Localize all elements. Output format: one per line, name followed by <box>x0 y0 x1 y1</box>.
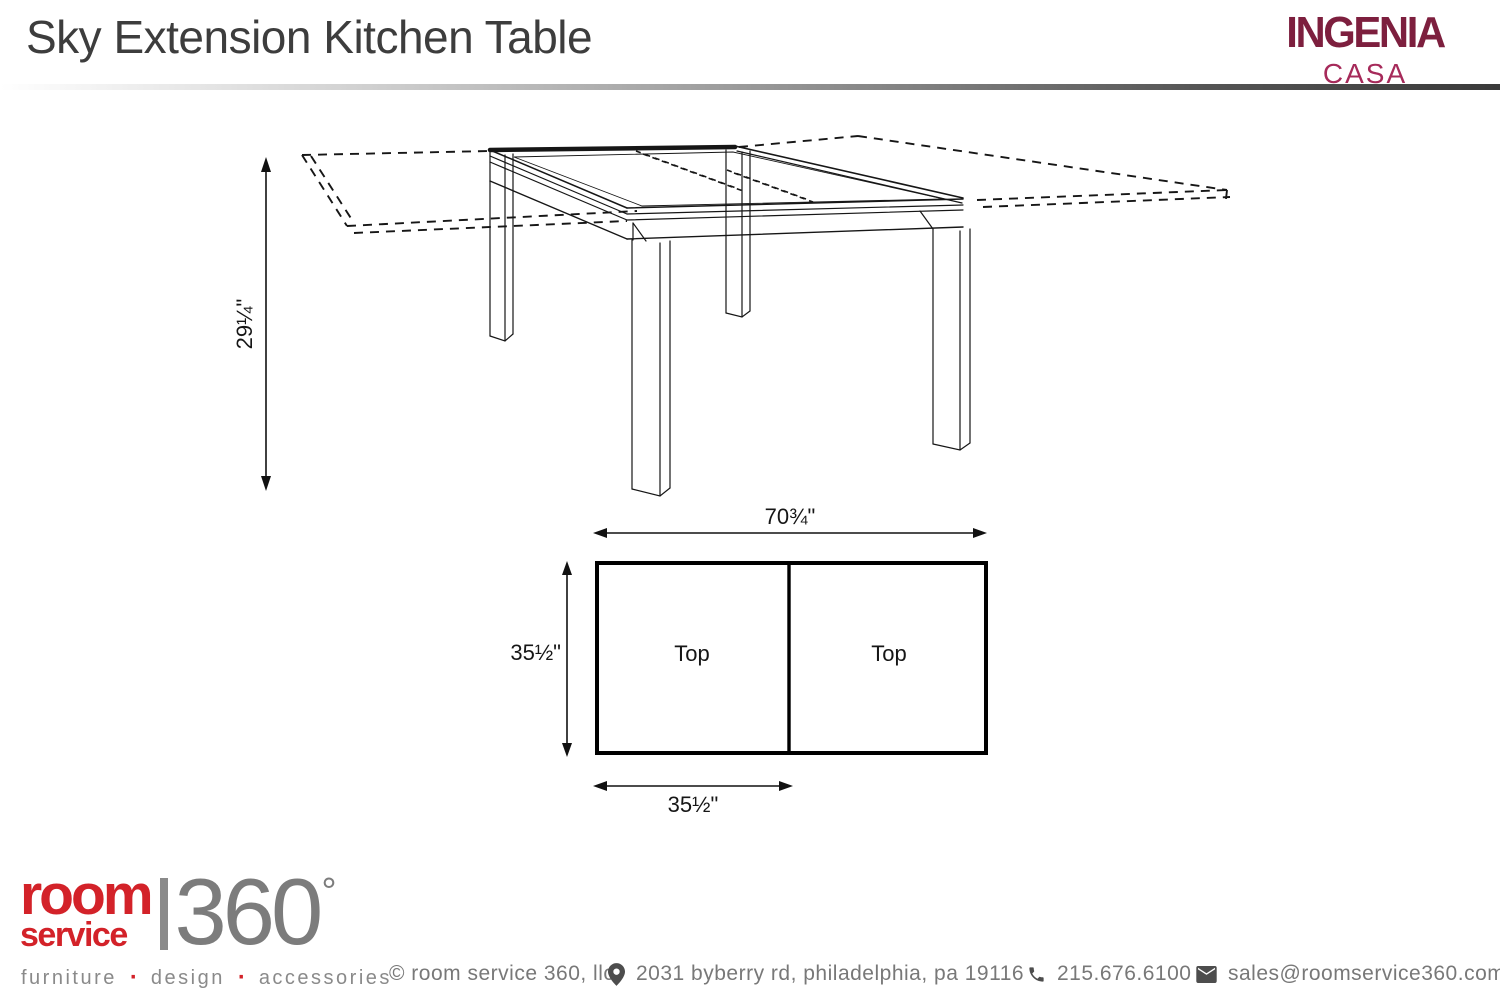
table-top-plan-view: 70¾" Top Top 35½" 35½" <box>510 504 987 817</box>
depth-dimension-label: 35½" <box>510 640 561 665</box>
logo-degree-mark: ° <box>321 871 336 913</box>
logo-tagline: furniture · design · accessories <box>21 964 392 992</box>
table-leg-front-right <box>920 211 970 450</box>
copyright-label: © room service 360, llc <box>389 962 614 986</box>
location-pin-icon <box>608 963 625 986</box>
table-isometric-drawing <box>490 146 970 496</box>
phone-label: 215.676.6100 <box>1057 962 1191 986</box>
dimension-diagram: 29¼" 70¾" Top Top 35½" 35½" <box>0 0 1500 1000</box>
address-item: 2031 byberry rd, philadelphia, pa 19116 <box>608 960 1024 988</box>
phone-item: 215.676.6100 <box>1027 960 1191 988</box>
spec-sheet-page: Sky Extension Kitchen Table INGENIA CASA <box>0 0 1500 1000</box>
copyright-text: © room service 360, llc <box>389 960 614 988</box>
overall-width-label: 70¾" <box>765 504 816 529</box>
plan-right-panel-label: Top <box>871 641 906 666</box>
table-leg-back-left <box>490 150 513 341</box>
logo-divider-bar <box>160 878 168 950</box>
tagline-word: furniture <box>21 967 117 990</box>
tagline-word: design <box>151 967 225 990</box>
roomservice360-logo: room service 360° <box>20 872 335 951</box>
logo-number: 360 <box>175 859 320 964</box>
plan-left-panel-label: Top <box>674 641 709 666</box>
half-top-width-label: 35½" <box>668 792 719 817</box>
extension-leaf-left <box>302 151 637 233</box>
envelope-icon <box>1196 966 1217 983</box>
tagline-separator-dot: · <box>238 964 246 992</box>
logo-word-service: service <box>20 919 127 951</box>
email-label: sales@roomservice360.com <box>1228 962 1500 986</box>
address-label: 2031 byberry rd, philadelphia, pa 19116 <box>636 962 1024 986</box>
tagline-separator-dot: · <box>130 964 138 992</box>
table-leg-front-left <box>632 223 670 496</box>
plan-outline <box>597 563 986 753</box>
under-glass-rails <box>636 151 813 202</box>
height-dimension-label: 29¼" <box>232 299 257 350</box>
tagline-word: accessories <box>259 967 392 990</box>
phone-icon <box>1027 965 1046 984</box>
logo-word-room: room <box>20 872 151 919</box>
email-item: sales@roomservice360.com <box>1196 960 1500 988</box>
height-dimension: 29¼" <box>232 157 271 491</box>
extension-leaf-right <box>739 136 1230 207</box>
logo-number-360: 360° <box>175 874 335 949</box>
